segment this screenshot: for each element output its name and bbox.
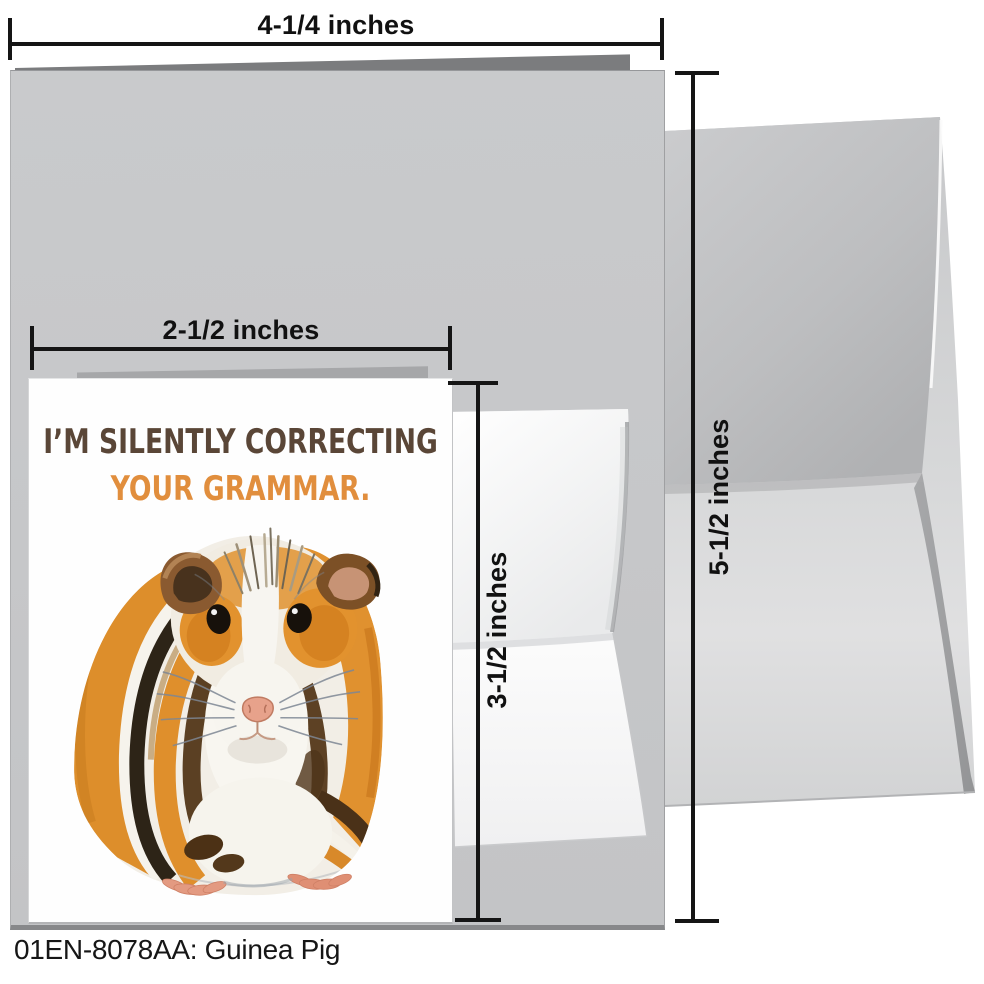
dim-envelope-height-line: [691, 71, 695, 923]
product-code-caption: 01EN-8078AA: Guinea Pig: [14, 934, 340, 966]
card-front: I’M SILENTLY CORRECTING YOUR GRAMMAR.: [28, 378, 453, 924]
dim-front-width-label: 2-1/2 inches: [30, 315, 452, 346]
dim-open-width-label: 4-1/4 inches: [8, 10, 664, 41]
dim-envelope-height-label: 5-1/2 inches: [704, 412, 734, 582]
dim-envelope-height-tick-top: [675, 71, 719, 75]
dim-front-height-line: [476, 381, 480, 922]
dim-front-width-line: [30, 347, 452, 351]
dim-front-height-label: 3-1/2 inches: [482, 545, 512, 715]
dim-open-width-line: [8, 42, 664, 46]
guinea-pig-illustration: [29, 379, 452, 922]
large-card-fold-edge: [15, 54, 630, 71]
large-envelope: [650, 108, 980, 810]
small-envelope: [440, 402, 655, 854]
dim-front-height-tick-top: [448, 381, 498, 385]
greeting-card-product-mockup: I’M SILENTLY CORRECTING YOUR GRAMMAR.: [0, 0, 984, 984]
dim-envelope-height-tick-bottom: [675, 919, 719, 923]
dim-front-height-tick-bottom: [455, 918, 501, 922]
